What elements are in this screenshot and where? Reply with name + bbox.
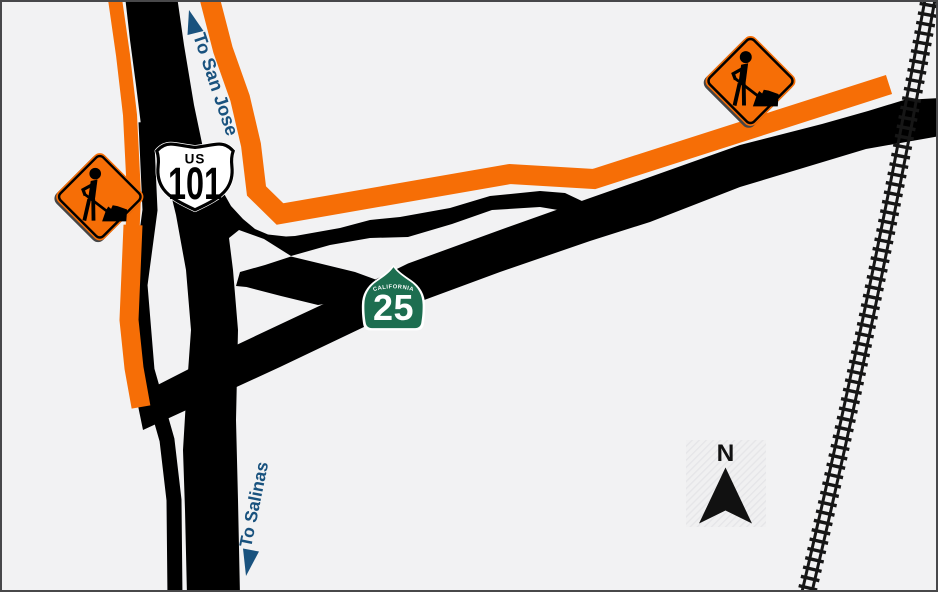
svg-text:101: 101 [168,160,222,209]
svg-text:25: 25 [373,287,414,328]
svg-text:N: N [717,440,735,467]
